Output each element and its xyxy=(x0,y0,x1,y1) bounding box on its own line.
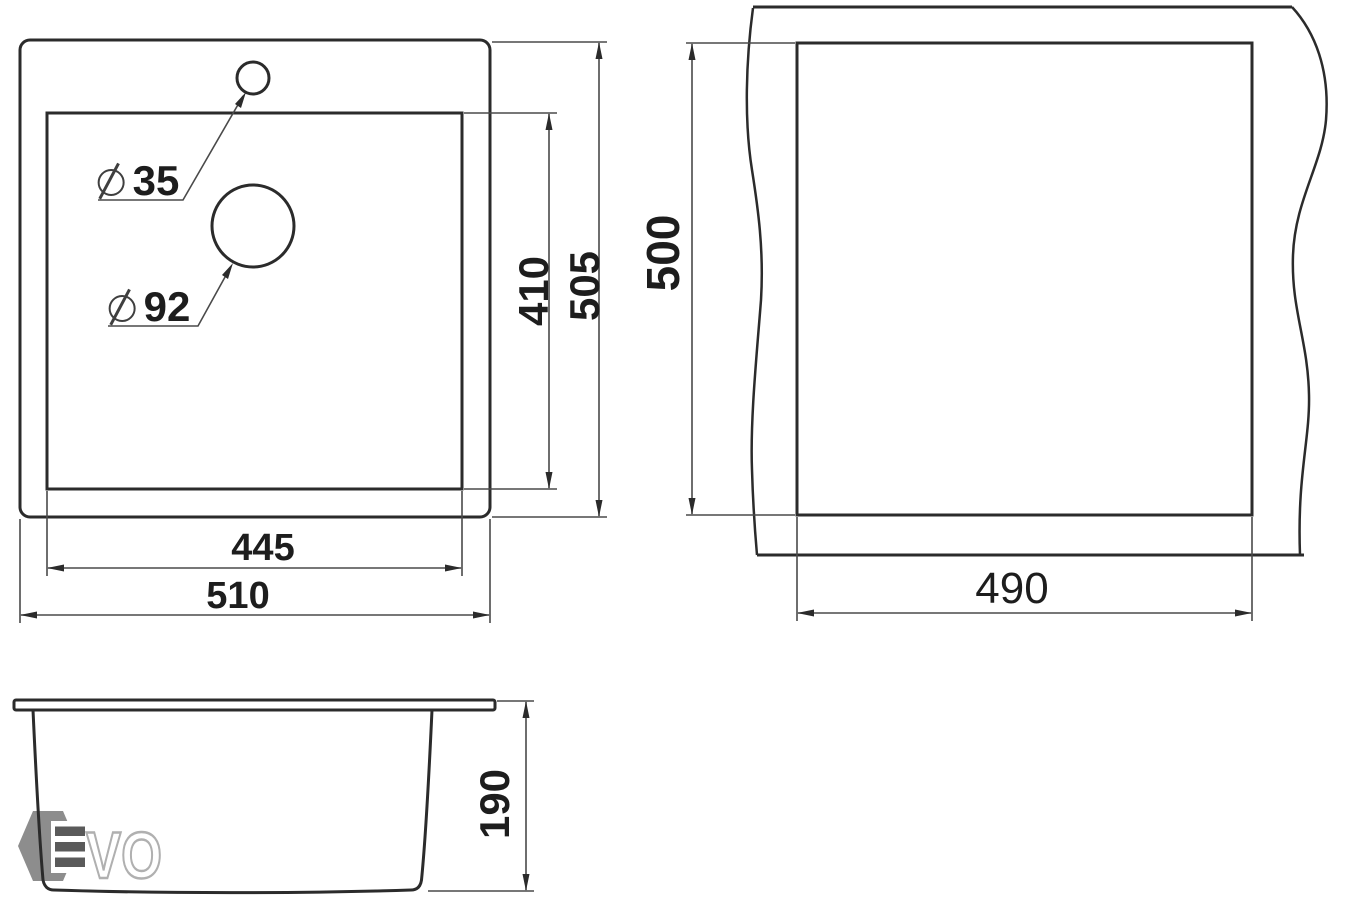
top-view xyxy=(20,40,490,517)
cutout-width-dimension-label: 490 xyxy=(975,567,1048,611)
arrow-down xyxy=(689,498,696,515)
break-line-left xyxy=(747,8,762,555)
arrow-up xyxy=(523,701,530,718)
diameter-symbol-icon xyxy=(108,287,138,327)
drain-hole-circle xyxy=(212,185,294,267)
arrow-right xyxy=(1235,610,1252,617)
arrow-up xyxy=(689,43,696,60)
arrow-down xyxy=(546,472,553,489)
drain-hole-diameter-label: 92 xyxy=(108,286,191,328)
bowl-depth-dimension-label: 410 xyxy=(513,256,555,326)
arrow-left xyxy=(47,565,64,572)
drain-hole-diameter-value: 92 xyxy=(144,286,191,328)
arrow-down xyxy=(596,500,603,517)
technical-drawing-canvas: VO xyxy=(0,0,1350,900)
arrow-down xyxy=(523,874,530,891)
arrow-up xyxy=(596,42,603,59)
faucet-hole-circle xyxy=(237,62,269,94)
top-view-arrowheads xyxy=(20,42,603,619)
faucet-hole-diameter-value: 35 xyxy=(133,160,180,202)
logo-e-bars xyxy=(55,827,85,868)
bowl-width-dimension-label: 445 xyxy=(231,529,294,567)
cutout-view xyxy=(747,7,1327,555)
arrow-left xyxy=(20,612,37,619)
break-line-right xyxy=(1292,7,1327,555)
sink-depth-dimension-label: 190 xyxy=(474,769,516,839)
diameter-symbol-icon xyxy=(97,161,127,201)
arrow-left xyxy=(797,610,814,617)
arrow-up xyxy=(546,113,553,130)
sink-flange-profile xyxy=(14,700,495,710)
drain-leader-arrow xyxy=(222,263,233,279)
cutout-rectangle xyxy=(797,43,1252,515)
logo-vo-text: VO xyxy=(86,818,162,892)
cutout-arrowheads xyxy=(689,43,1253,617)
cutout-dimensions xyxy=(686,43,1252,621)
drawing-linework: VO xyxy=(0,0,1350,900)
faucet-hole-diameter-label: 35 xyxy=(97,160,180,202)
overall-depth-dimension-label: 505 xyxy=(564,251,606,321)
overall-width-dimension-label: 510 xyxy=(206,577,269,615)
arrow-right xyxy=(445,565,462,572)
arrow-right xyxy=(473,612,490,619)
cutout-height-dimension-label: 500 xyxy=(640,215,686,292)
top-view-dimensions xyxy=(20,42,607,623)
